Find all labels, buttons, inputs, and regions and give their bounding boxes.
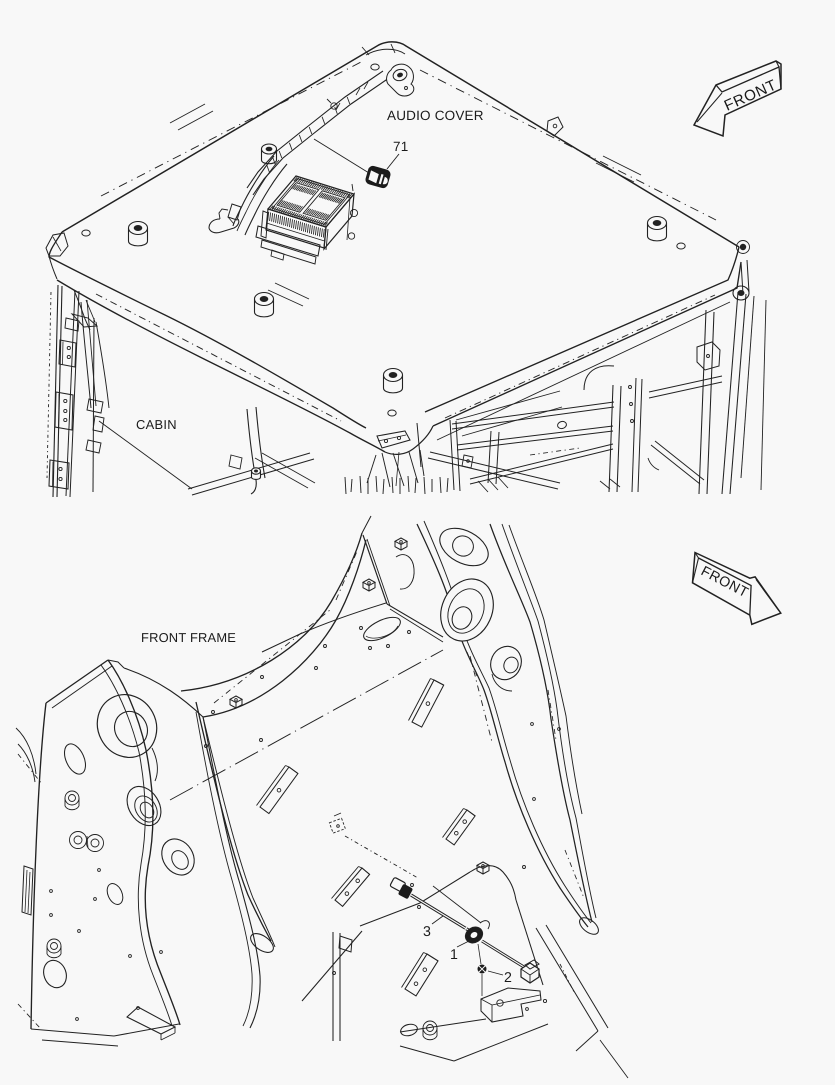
svg-text:2: 2	[504, 970, 512, 986]
svg-text:1: 1	[450, 947, 458, 963]
svg-text:3: 3	[423, 924, 431, 940]
svg-text:71: 71	[393, 139, 408, 154]
svg-text:CABIN: CABIN	[136, 417, 177, 432]
svg-text:AUDIO COVER: AUDIO COVER	[387, 108, 484, 123]
svg-text:FRONT FRAME: FRONT FRAME	[141, 630, 236, 645]
